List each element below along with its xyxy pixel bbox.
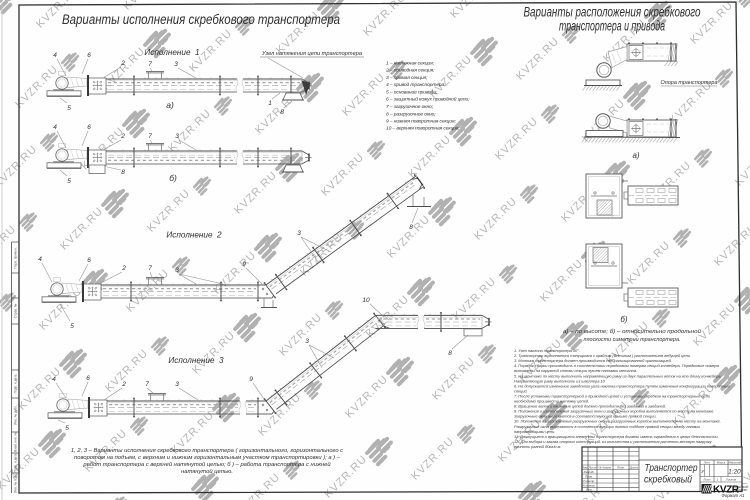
svg-text:1: 1 [268,100,272,107]
svg-text:Узел натяжения цепи транспорте: Узел натяжения цепи транспортера [261,51,362,57]
svg-text:8 – разгрузочное окно;: 8 – разгрузочное окно; [386,111,436,117]
svg-text:4 – привод транспортера;: 4 – привод транспортера; [386,82,446,88]
svg-text:Подп. и дата: Подп. и дата [14,374,18,393]
svg-text:6: 6 [87,52,91,59]
svg-text:Взам. инв. №: Взам. инв. № [14,432,18,452]
svg-text:работ транспортера с верхней н: работ транспортера с верхней натянутой ц… [82,461,331,468]
svg-text:Т.контр.: Т.контр. [583,479,595,483]
svg-text:7 – загрузочное окно;: 7 – загрузочное окно; [386,104,434,110]
svg-text:б): б) [620,315,628,324]
svg-text:Справ. №: Справ. № [14,303,18,318]
svg-text:5: 5 [67,105,71,112]
svg-text:Листов: Листов [725,478,737,482]
svg-text:б): б) [169,173,177,183]
svg-text:2: 2 [120,133,125,140]
svg-text:9 – нижняя поворотная секция;: 9 – нижняя поворотная секция; [386,119,456,125]
svg-text:3 – прямая секция;: 3 – прямая секция; [386,75,428,81]
svg-text:7: 7 [148,265,152,272]
svg-text:Дата: Дата [629,465,638,469]
svg-text:10 – верхняя поворотная секци: 10 – верхняя поворотная секция; [386,126,460,132]
svg-text:4: 4 [38,256,42,263]
svg-text:Лист: Лист [702,478,711,482]
svg-text:6 – защитный кожух приводной: 6 – защитный кожух приводной цепи; [386,96,470,103]
svg-text:Исполнение 1: Исполнение 1 [144,48,199,57]
svg-text:5 – основание привода;: 5 – основание привода; [386,89,438,95]
svg-text:3: 3 [175,381,179,388]
svg-text:а): а) [166,100,174,110]
svg-text:3: 3 [174,61,178,68]
svg-text:Исполнение 3: Исполнение 3 [168,356,224,365]
svg-text:поворотом на подъем, с верхним: поворотом на подъем, с верхним и нижним … [74,455,341,461]
svg-text:принять равной 80кг/п.м.: принять равной 80кг/п.м. [514,444,561,449]
svg-text:5: 5 [67,178,71,185]
svg-text:4: 4 [52,376,56,383]
svg-text:Варианты исполнения скребковог: Варианты исполнения скребкового транспор… [62,12,340,27]
svg-text:транспортера и привода: транспортера и привода [559,19,665,34]
svg-text:Формат А1: Формат А1 [722,493,745,498]
svg-text:10: 10 [362,297,370,304]
svg-text:ЗАВОД Р.ВН: ЗАВОД Р.ВН [734,489,748,492]
svg-text:5: 5 [70,323,74,330]
svg-text:1:20: 1:20 [728,469,741,476]
svg-text:7: 7 [148,133,152,140]
svg-text:4: 4 [53,52,57,59]
svg-text:7: 7 [145,381,149,388]
svg-text:6: 6 [86,375,90,382]
svg-text:5: 5 [65,425,69,432]
svg-text:8: 8 [121,169,125,176]
svg-text:6: 6 [87,124,91,131]
svg-text:8: 8 [280,109,284,116]
svg-text:2: 2 [121,381,126,388]
svg-text:1 – натяжная секция;: 1 – натяжная секция; [386,61,435,67]
svg-text:Перв. примен.: Перв. примен. [14,247,18,268]
svg-text:3: 3 [305,338,309,345]
svg-text:Опора транспортера: Опора транспортера [661,80,718,86]
svg-text:8: 8 [448,350,452,357]
svg-text:Лит.: Лит. [703,460,711,464]
svg-text:Масса: Масса [717,460,726,464]
svg-text:Подп.: Подп. [617,465,625,469]
svg-text:3: 3 [175,133,179,140]
svg-text:Транспортер: Транспортер [645,462,698,474]
svg-text:Лист: Лист [588,465,597,469]
svg-text:Масштаб: Масштаб [728,460,741,464]
svg-text:Подп. и дата: Подп. и дата [14,453,18,472]
svg-text:Утв.: Утв. [586,488,593,492]
svg-text:2: 2 [121,265,126,272]
svg-text:2 – приводная секция;: 2 – приводная секция; [385,68,435,74]
svg-text:4: 4 [53,124,57,131]
svg-text:Разраб.: Разраб. [584,470,595,474]
svg-text:Варианты расположения скребков: Варианты расположения скребкового [524,5,701,20]
svg-text:8: 8 [409,224,413,231]
svg-text:6. Не допускается изменение за: 6. Не допускается изменение заводского у… [514,383,731,388]
svg-text:КОПЕЙСКИЙ: КОПЕЙСКИЙ [734,486,749,489]
svg-text:9: 9 [249,376,253,383]
svg-text:3: 3 [297,230,301,237]
svg-text:Исполнение 2: Исполнение 2 [166,231,222,240]
svg-text:№ докум.: № докум. [598,465,611,469]
svg-text:скребковый: скребковый [644,474,692,486]
svg-text:натянутой цепью.: натянутой цепью. [181,468,233,475]
svg-text:7: 7 [148,61,152,68]
svg-text:плоскости симетрии транспортер: плоскости симетрии транспортера. [584,337,681,343]
svg-text:а): а) [632,151,639,160]
svg-text:1, 2, 3 – Варианты исполнения: 1, 2, 3 – Варианты исполнения скребковог… [71,448,343,454]
svg-text:Инв. № дубл.: Инв. № дубл. [14,405,18,425]
svg-text:Инв. № подл.: Инв. № подл. [14,473,18,493]
svg-text:6: 6 [87,257,91,264]
svg-text:Изм.: Изм. [582,465,589,469]
svg-text:а) – по высоте; б) – относи: а) – по высоте; б) – относительно продол… [563,328,702,335]
svg-text:2: 2 [120,60,125,67]
svg-text:9: 9 [242,261,246,268]
svg-text:3: 3 [175,267,179,274]
svg-text:Пров.: Пров. [585,475,593,479]
